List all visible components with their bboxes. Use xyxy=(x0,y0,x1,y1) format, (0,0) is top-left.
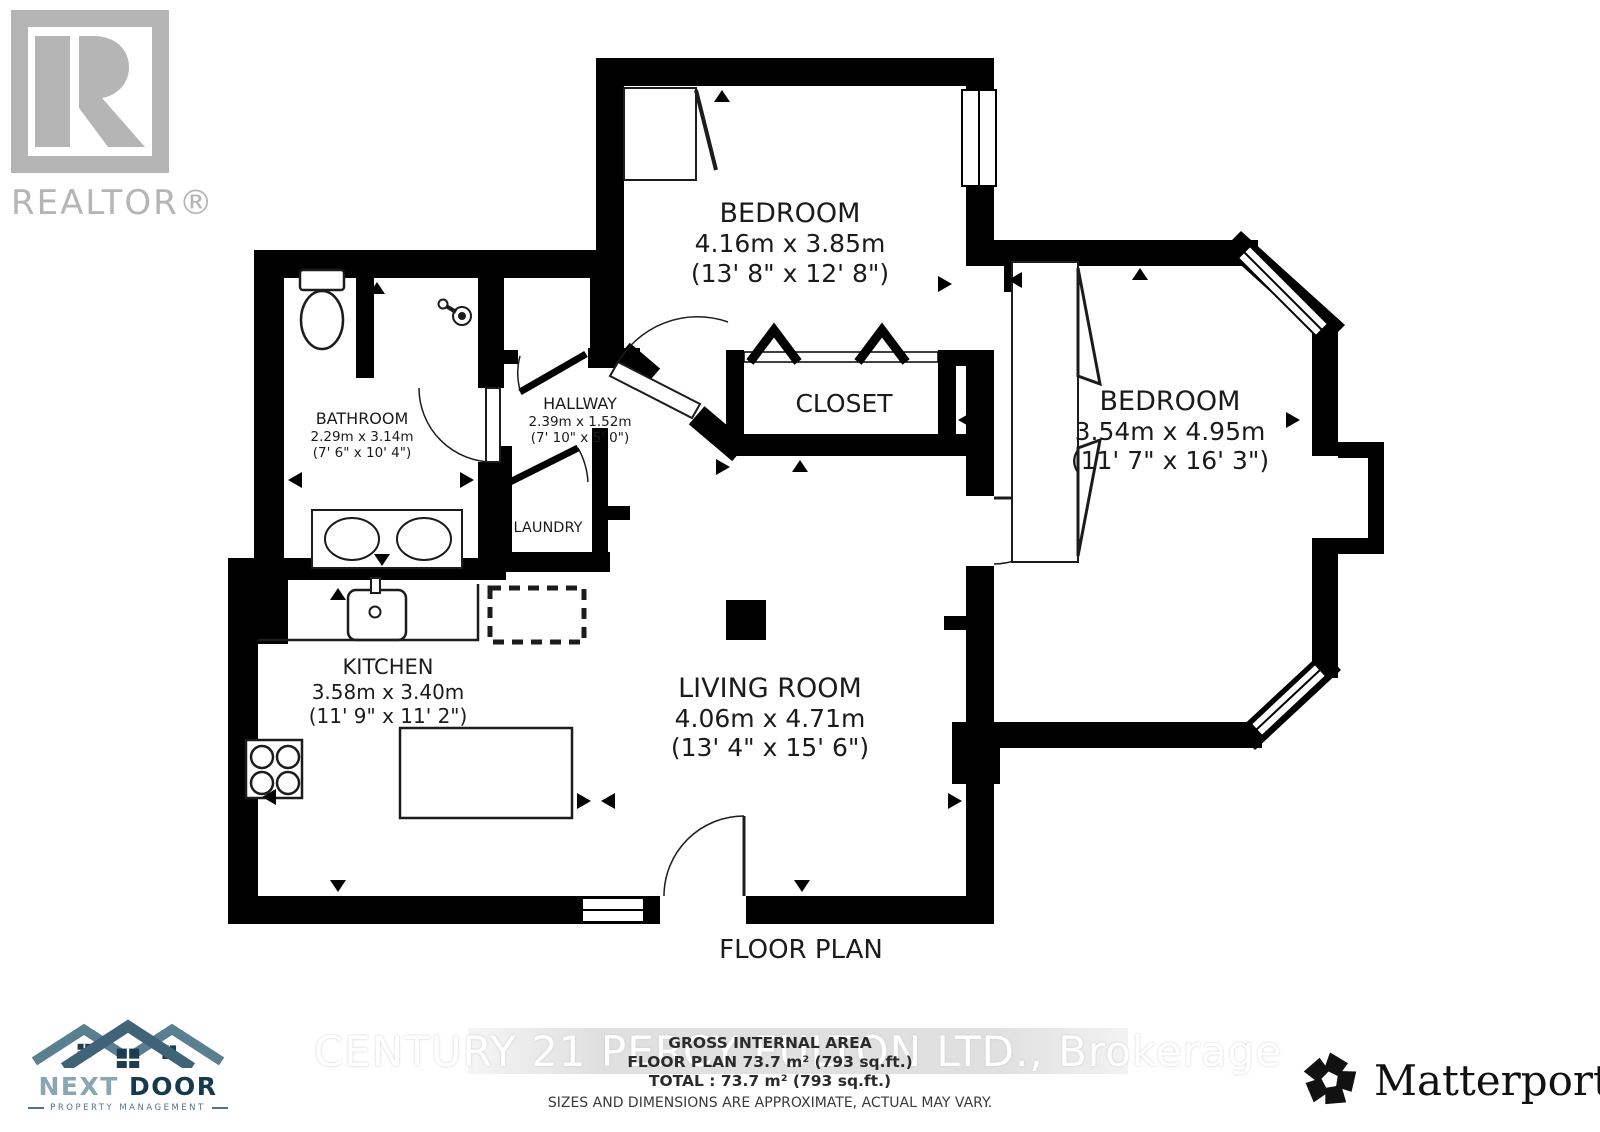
wall xyxy=(726,434,966,456)
wardrobe-bedroom1 xyxy=(624,88,716,180)
subtitle-dash-left xyxy=(28,1107,44,1109)
wall xyxy=(966,566,994,724)
door-leaf xyxy=(520,354,586,392)
wall xyxy=(938,350,994,366)
wall xyxy=(608,506,630,520)
next-door-name-dark: DOOR xyxy=(129,1072,218,1101)
next-door-logo: NEXT DOOR PROPERTY MANAGEMENT xyxy=(28,1002,228,1113)
double-vanity xyxy=(312,510,462,568)
wall xyxy=(1000,722,1262,748)
wall xyxy=(944,616,966,630)
kitchen-sink xyxy=(348,578,406,640)
next-door-name-light: NEXT xyxy=(38,1072,118,1101)
realtor-logo-text: REALTOR® xyxy=(11,183,215,223)
door-arc xyxy=(664,816,744,896)
wall xyxy=(1312,322,1338,456)
room-label-hallway: HALLWAY 2.39m x 1.52m (7' 10" x 5' 0") xyxy=(529,394,632,446)
wall xyxy=(596,58,994,86)
closet-bifold-doors xyxy=(744,330,938,362)
room-name: BEDROOM xyxy=(720,198,861,229)
matterport-pinwheel-icon xyxy=(1300,1050,1360,1110)
room-dim-metric: 4.06m x 4.71m xyxy=(675,704,866,733)
next-door-roofs-icon xyxy=(28,1002,228,1068)
room-dim-metric: 3.58m x 3.40m xyxy=(312,680,465,704)
room-dim-imperial: (11' 7" x 16' 3") xyxy=(1071,446,1269,475)
column xyxy=(726,600,766,640)
room-dim-metric: 4.16m x 3.85m xyxy=(695,229,886,258)
door-leaf xyxy=(486,388,500,462)
room-name: LIVING ROOM xyxy=(678,673,862,704)
room-label-bedroom1: BEDROOM 4.16m x 3.85m (13' 8" x 12' 8") xyxy=(691,198,889,288)
wall xyxy=(496,446,512,570)
wall xyxy=(478,250,504,388)
room-dim-imperial: (7' 6" x 10' 4") xyxy=(313,445,411,461)
room-label-laundry: LAUNDRY xyxy=(514,520,583,536)
window-bedroom1 xyxy=(962,90,996,186)
room-name: LAUNDRY xyxy=(514,520,583,536)
matterport-wordmark: Matterport® xyxy=(1374,1056,1600,1105)
room-label-living-room: LIVING ROOM 4.06m x 4.71m (13' 4" x 15' … xyxy=(671,673,869,762)
room-dim-imperial: (7' 10" x 5' 0") xyxy=(531,430,629,446)
matterport-name: Matterport xyxy=(1374,1056,1600,1105)
room-name: BATHROOM xyxy=(316,409,409,428)
wall xyxy=(966,240,1258,266)
wall xyxy=(356,250,374,378)
next-door-subtitle: PROPERTY MANAGEMENT xyxy=(50,1103,205,1113)
kitchen-island xyxy=(400,728,572,818)
floor-plan-drawing: BEDROOM 4.16m x 3.85m (13' 8" x 12' 8") … xyxy=(0,0,1600,1132)
appliance-dashed xyxy=(490,588,584,642)
room-dim-metric: 3.54m x 4.95m xyxy=(1075,417,1266,446)
room-label-closet: CLOSET xyxy=(795,389,893,418)
fixtures xyxy=(246,270,584,818)
realtor-r-icon xyxy=(11,10,169,175)
room-name: KITCHEN xyxy=(343,655,434,679)
subtitle-dash-right xyxy=(212,1107,228,1109)
wall xyxy=(592,428,608,572)
room-dim-imperial: (13' 4" x 15' 6") xyxy=(671,733,869,762)
floor-plan-page: { "branding": { "realtor_logo_text": "RE… xyxy=(0,0,1600,1132)
door-arc xyxy=(518,356,520,390)
next-door-name: NEXT DOOR xyxy=(28,1072,228,1101)
stove-icon xyxy=(246,740,302,798)
wall xyxy=(966,58,994,92)
door-arc xyxy=(578,448,588,482)
room-name: HALLWAY xyxy=(543,394,617,413)
door-opening xyxy=(660,896,746,924)
matterport-logo: Matterport® xyxy=(1300,1050,1600,1110)
room-label-bedroom2: BEDROOM 3.54m x 4.95m (11' 7" x 16' 3") xyxy=(1071,386,1269,475)
room-name: BEDROOM xyxy=(1100,386,1241,417)
door-arc xyxy=(419,388,493,462)
wall xyxy=(1338,538,1384,554)
room-dim-imperial: (11' 9" x 11' 2") xyxy=(309,704,468,728)
room-label-bathroom: BATHROOM 2.29m x 3.14m (7' 6" x 10' 4") xyxy=(311,409,414,461)
window-bay-bottom xyxy=(1251,664,1326,736)
realtor-logo: REALTOR® xyxy=(11,10,215,223)
room-name: CLOSET xyxy=(795,389,893,418)
toilet-icon xyxy=(300,270,344,349)
room-dim-metric: 2.29m x 3.14m xyxy=(311,429,414,445)
room-dim-imperial: (13' 8" x 12' 8") xyxy=(691,259,889,288)
window-living-room xyxy=(582,898,644,922)
wardrobe-bedroom2 xyxy=(1012,262,1100,562)
window-bay-top xyxy=(1238,246,1328,336)
wall xyxy=(952,722,1000,784)
next-door-subtitle-row: PROPERTY MANAGEMENT xyxy=(28,1103,228,1113)
wall xyxy=(1368,442,1384,554)
room-label-kitchen: KITCHEN 3.58m x 3.40m (11' 9" x 11' 2") xyxy=(309,655,468,728)
wall xyxy=(496,350,518,364)
plan-title: FLOOR PLAN xyxy=(719,935,883,965)
wall xyxy=(254,250,284,568)
room-dim-metric: 2.39m x 1.52m xyxy=(529,414,632,430)
door-leaf xyxy=(510,448,578,482)
faucet-icon xyxy=(439,300,472,326)
